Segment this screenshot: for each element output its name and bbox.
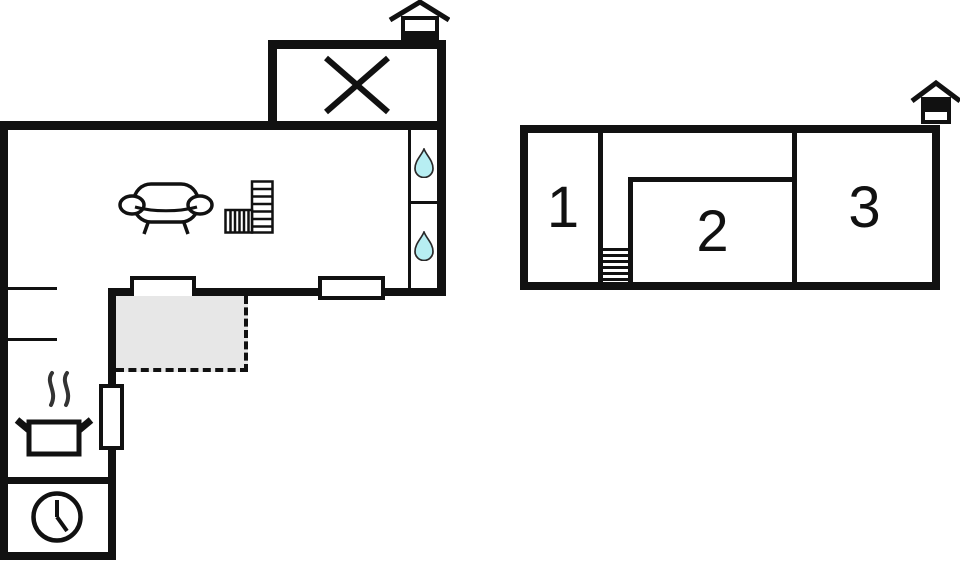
x-mark-icon xyxy=(322,54,392,116)
clock-room-divider-wall xyxy=(0,477,116,484)
kitchen-counter-line xyxy=(8,287,57,290)
l-shaped-stairs-icon xyxy=(224,180,274,234)
bottom-outer-wall xyxy=(0,552,116,560)
door xyxy=(99,384,124,450)
entrance-house-icon xyxy=(907,79,960,125)
right-outer-wall xyxy=(437,40,446,296)
bathroom-divider-wall xyxy=(411,201,437,204)
bathroom-partition-wall xyxy=(408,130,411,288)
floor-plan-canvas: 1 2 3 xyxy=(0,0,960,563)
room-2-label: 2 xyxy=(633,182,792,282)
kitchen-counter-line xyxy=(8,338,57,341)
top-outer-wall xyxy=(0,121,446,130)
stairs-icon xyxy=(603,246,628,282)
upper-left-wall xyxy=(520,125,528,290)
left-outer-wall xyxy=(0,121,8,560)
upper-right-wall xyxy=(932,125,940,290)
water-drop-icon xyxy=(414,148,434,178)
upper-bottom-wall xyxy=(520,282,940,290)
entrance-house-icon xyxy=(388,0,450,46)
room-3-label: 3 xyxy=(797,133,932,282)
clock-icon xyxy=(30,490,84,544)
window xyxy=(318,276,385,300)
annex-left-wall xyxy=(268,40,277,130)
terrace-area xyxy=(116,296,248,372)
water-drop-icon xyxy=(414,231,434,261)
upper-top-wall xyxy=(520,125,940,133)
sofa-icon xyxy=(118,178,214,236)
room-1-label: 1 xyxy=(528,133,598,282)
cooking-pot-steam-icon xyxy=(14,368,96,460)
